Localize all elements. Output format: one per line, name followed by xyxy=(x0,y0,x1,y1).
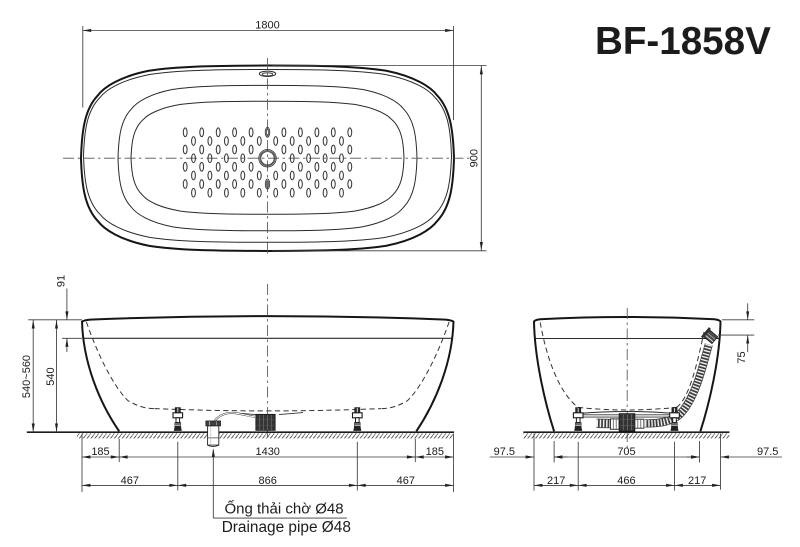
svg-text:540~560: 540~560 xyxy=(21,355,33,398)
svg-text:866: 866 xyxy=(259,475,277,487)
svg-text:185: 185 xyxy=(91,446,109,458)
svg-text:97.5: 97.5 xyxy=(494,446,515,458)
svg-text:466: 466 xyxy=(617,475,635,487)
svg-text:97.5: 97.5 xyxy=(757,446,778,458)
svg-text:75: 75 xyxy=(736,351,748,363)
svg-text:Drainage pipe Ø48: Drainage pipe Ø48 xyxy=(222,519,351,536)
svg-text:1800: 1800 xyxy=(255,20,279,32)
svg-text:91: 91 xyxy=(55,275,67,287)
svg-text:705: 705 xyxy=(617,446,635,458)
svg-text:217: 217 xyxy=(547,475,565,487)
svg-text:900: 900 xyxy=(469,149,481,167)
svg-text:217: 217 xyxy=(688,475,706,487)
svg-text:Ống thải chờ Ø48: Ống thải chờ Ø48 xyxy=(225,499,344,517)
svg-text:540: 540 xyxy=(45,367,57,385)
svg-text:467: 467 xyxy=(397,475,415,487)
svg-text:1430: 1430 xyxy=(255,446,279,458)
svg-text:185: 185 xyxy=(426,446,444,458)
svg-text:BF-1858V: BF-1858V xyxy=(595,20,771,63)
svg-text:467: 467 xyxy=(121,475,139,487)
